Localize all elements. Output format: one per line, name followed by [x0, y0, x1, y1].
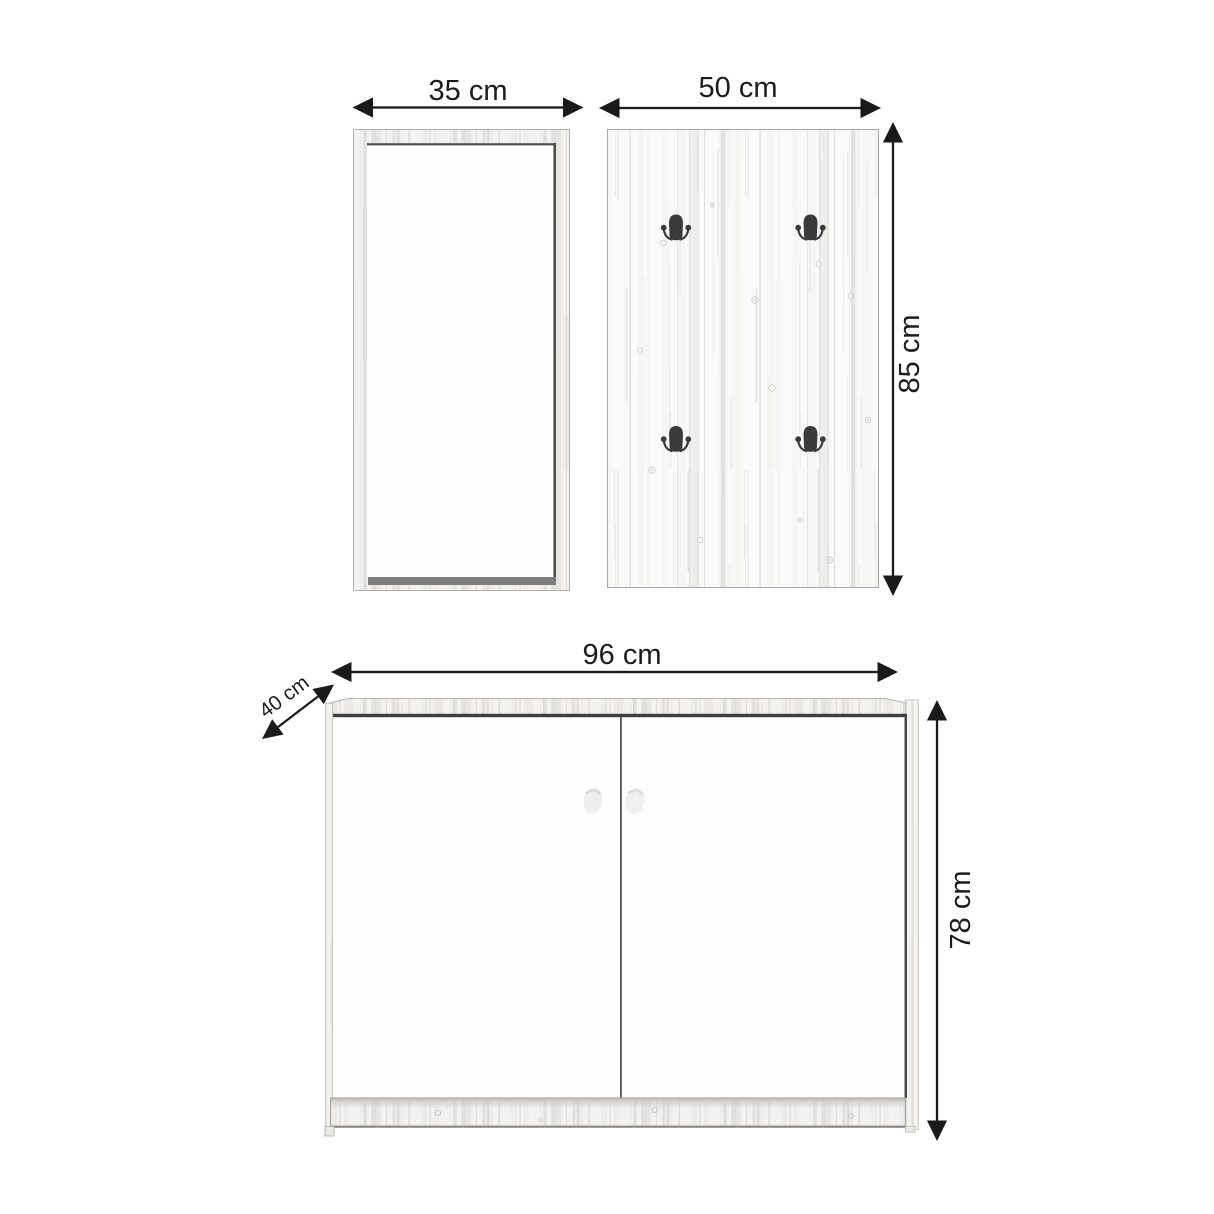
svg-text:78 cm: 78 cm: [945, 871, 977, 950]
svg-text:50 cm: 50 cm: [699, 72, 778, 104]
svg-text:85 cm: 85 cm: [894, 315, 926, 394]
svg-text:35 cm: 35 cm: [429, 75, 508, 107]
svg-text:96 cm: 96 cm: [583, 639, 662, 671]
